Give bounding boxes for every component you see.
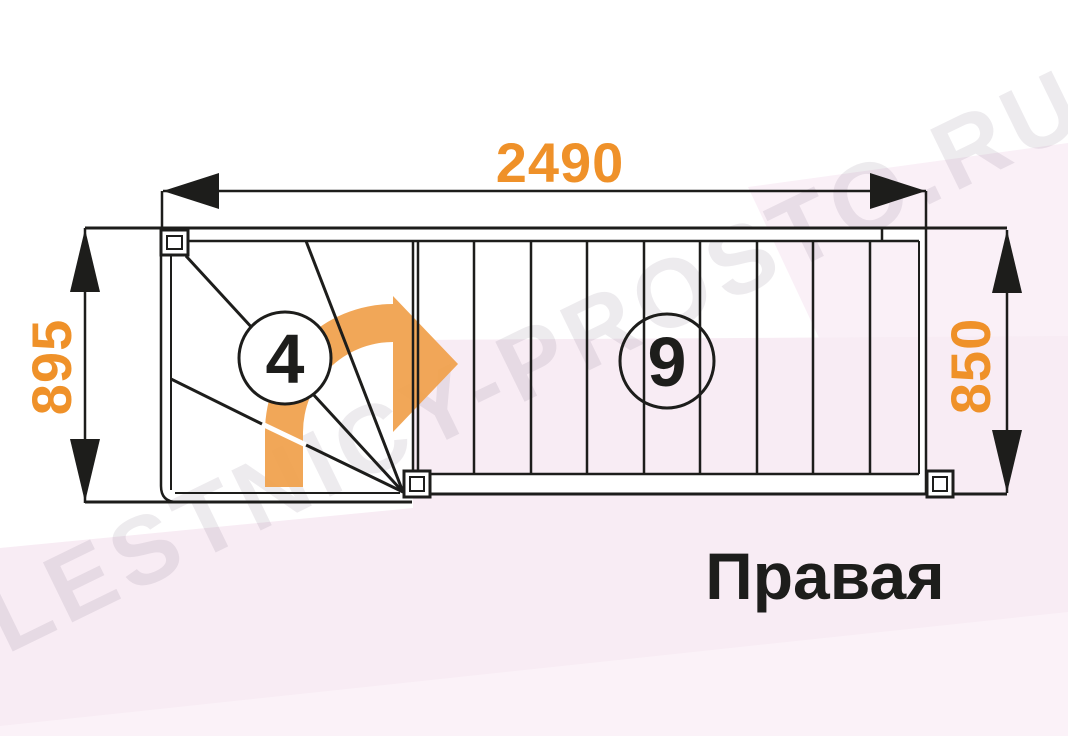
winder-step-count-badge: 4	[239, 312, 331, 404]
arrowhead-down-icon	[992, 430, 1022, 493]
stair-plan-drawing: 4 9 2490 895 850	[0, 0, 1068, 736]
arrowhead-left-icon	[163, 173, 219, 209]
stair-plan-page: LESTNICY-PROSTO.RU	[0, 0, 1068, 736]
arrowhead-up-icon	[70, 229, 100, 292]
winder-step-count: 4	[266, 320, 305, 398]
arrowhead-down-icon	[70, 439, 100, 502]
stair-type-label: Правая	[660, 538, 990, 614]
arrowhead-up-icon	[992, 230, 1022, 293]
arrowhead-right-icon	[870, 173, 926, 209]
straight-step-count: 9	[648, 323, 687, 401]
dimension-label-flight-width: 850	[939, 318, 1002, 414]
dimension-label-winder-depth: 895	[20, 319, 83, 415]
dimension-label-total-length: 2490	[496, 131, 625, 194]
